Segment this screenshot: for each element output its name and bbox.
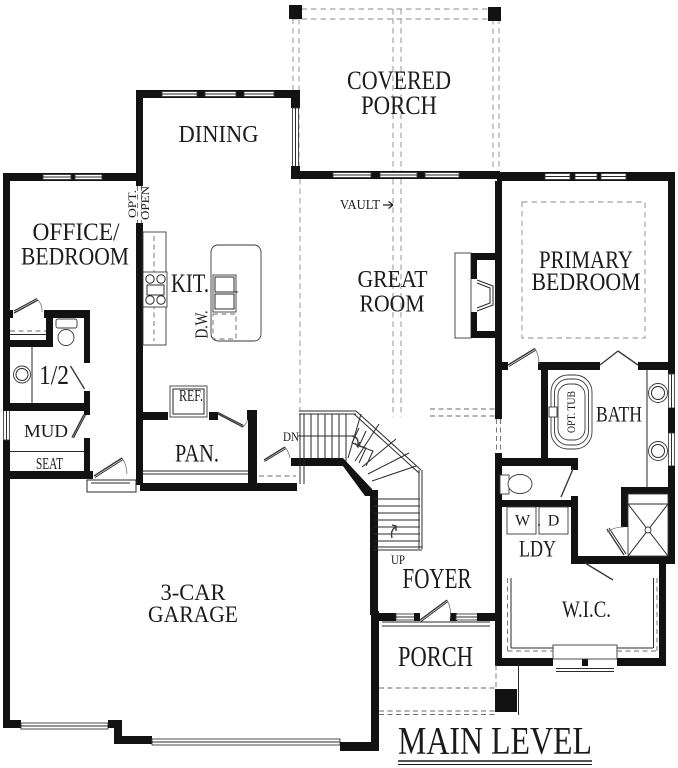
svg-text:PORCH: PORCH bbox=[361, 91, 437, 120]
svg-text:GARAGE: GARAGE bbox=[148, 602, 238, 627]
svg-text:GREAT: GREAT bbox=[358, 267, 428, 293]
svg-text:.: . bbox=[537, 513, 541, 530]
svg-text:D.W.: D.W. bbox=[192, 311, 212, 339]
svg-text:1/2: 1/2 bbox=[39, 360, 69, 390]
svg-text:SEAT: SEAT bbox=[36, 454, 63, 473]
svg-text:OPT. TUB: OPT. TUB bbox=[564, 391, 578, 433]
svg-text:DINING: DINING bbox=[179, 122, 259, 148]
svg-text:DN: DN bbox=[283, 429, 300, 444]
svg-text:W.I.C.: W.I.C. bbox=[562, 597, 611, 622]
svg-text:OPEN: OPEN bbox=[138, 186, 152, 220]
svg-text:OPT.: OPT. bbox=[125, 190, 139, 218]
svg-text:VAULT: VAULT bbox=[340, 198, 380, 213]
svg-text:KIT.: KIT. bbox=[171, 269, 209, 298]
svg-text:BATH: BATH bbox=[596, 402, 642, 427]
svg-text:OFFICE/: OFFICE/ bbox=[33, 219, 120, 246]
svg-text:PORCH: PORCH bbox=[398, 642, 473, 673]
svg-text:MAIN LEVEL: MAIN LEVEL bbox=[398, 720, 592, 763]
svg-text:PAN.: PAN. bbox=[175, 441, 219, 468]
svg-text:D: D bbox=[548, 513, 560, 530]
svg-text:REF.: REF. bbox=[179, 386, 203, 405]
svg-text:FOYER: FOYER bbox=[403, 563, 472, 595]
svg-text:W: W bbox=[515, 513, 531, 530]
svg-text:BEDROOM: BEDROOM bbox=[21, 244, 129, 271]
svg-text:ROOM: ROOM bbox=[360, 292, 425, 318]
svg-text:MUD: MUD bbox=[24, 421, 68, 441]
svg-text:LDY: LDY bbox=[519, 537, 556, 562]
svg-text:BEDROOM: BEDROOM bbox=[532, 269, 641, 296]
